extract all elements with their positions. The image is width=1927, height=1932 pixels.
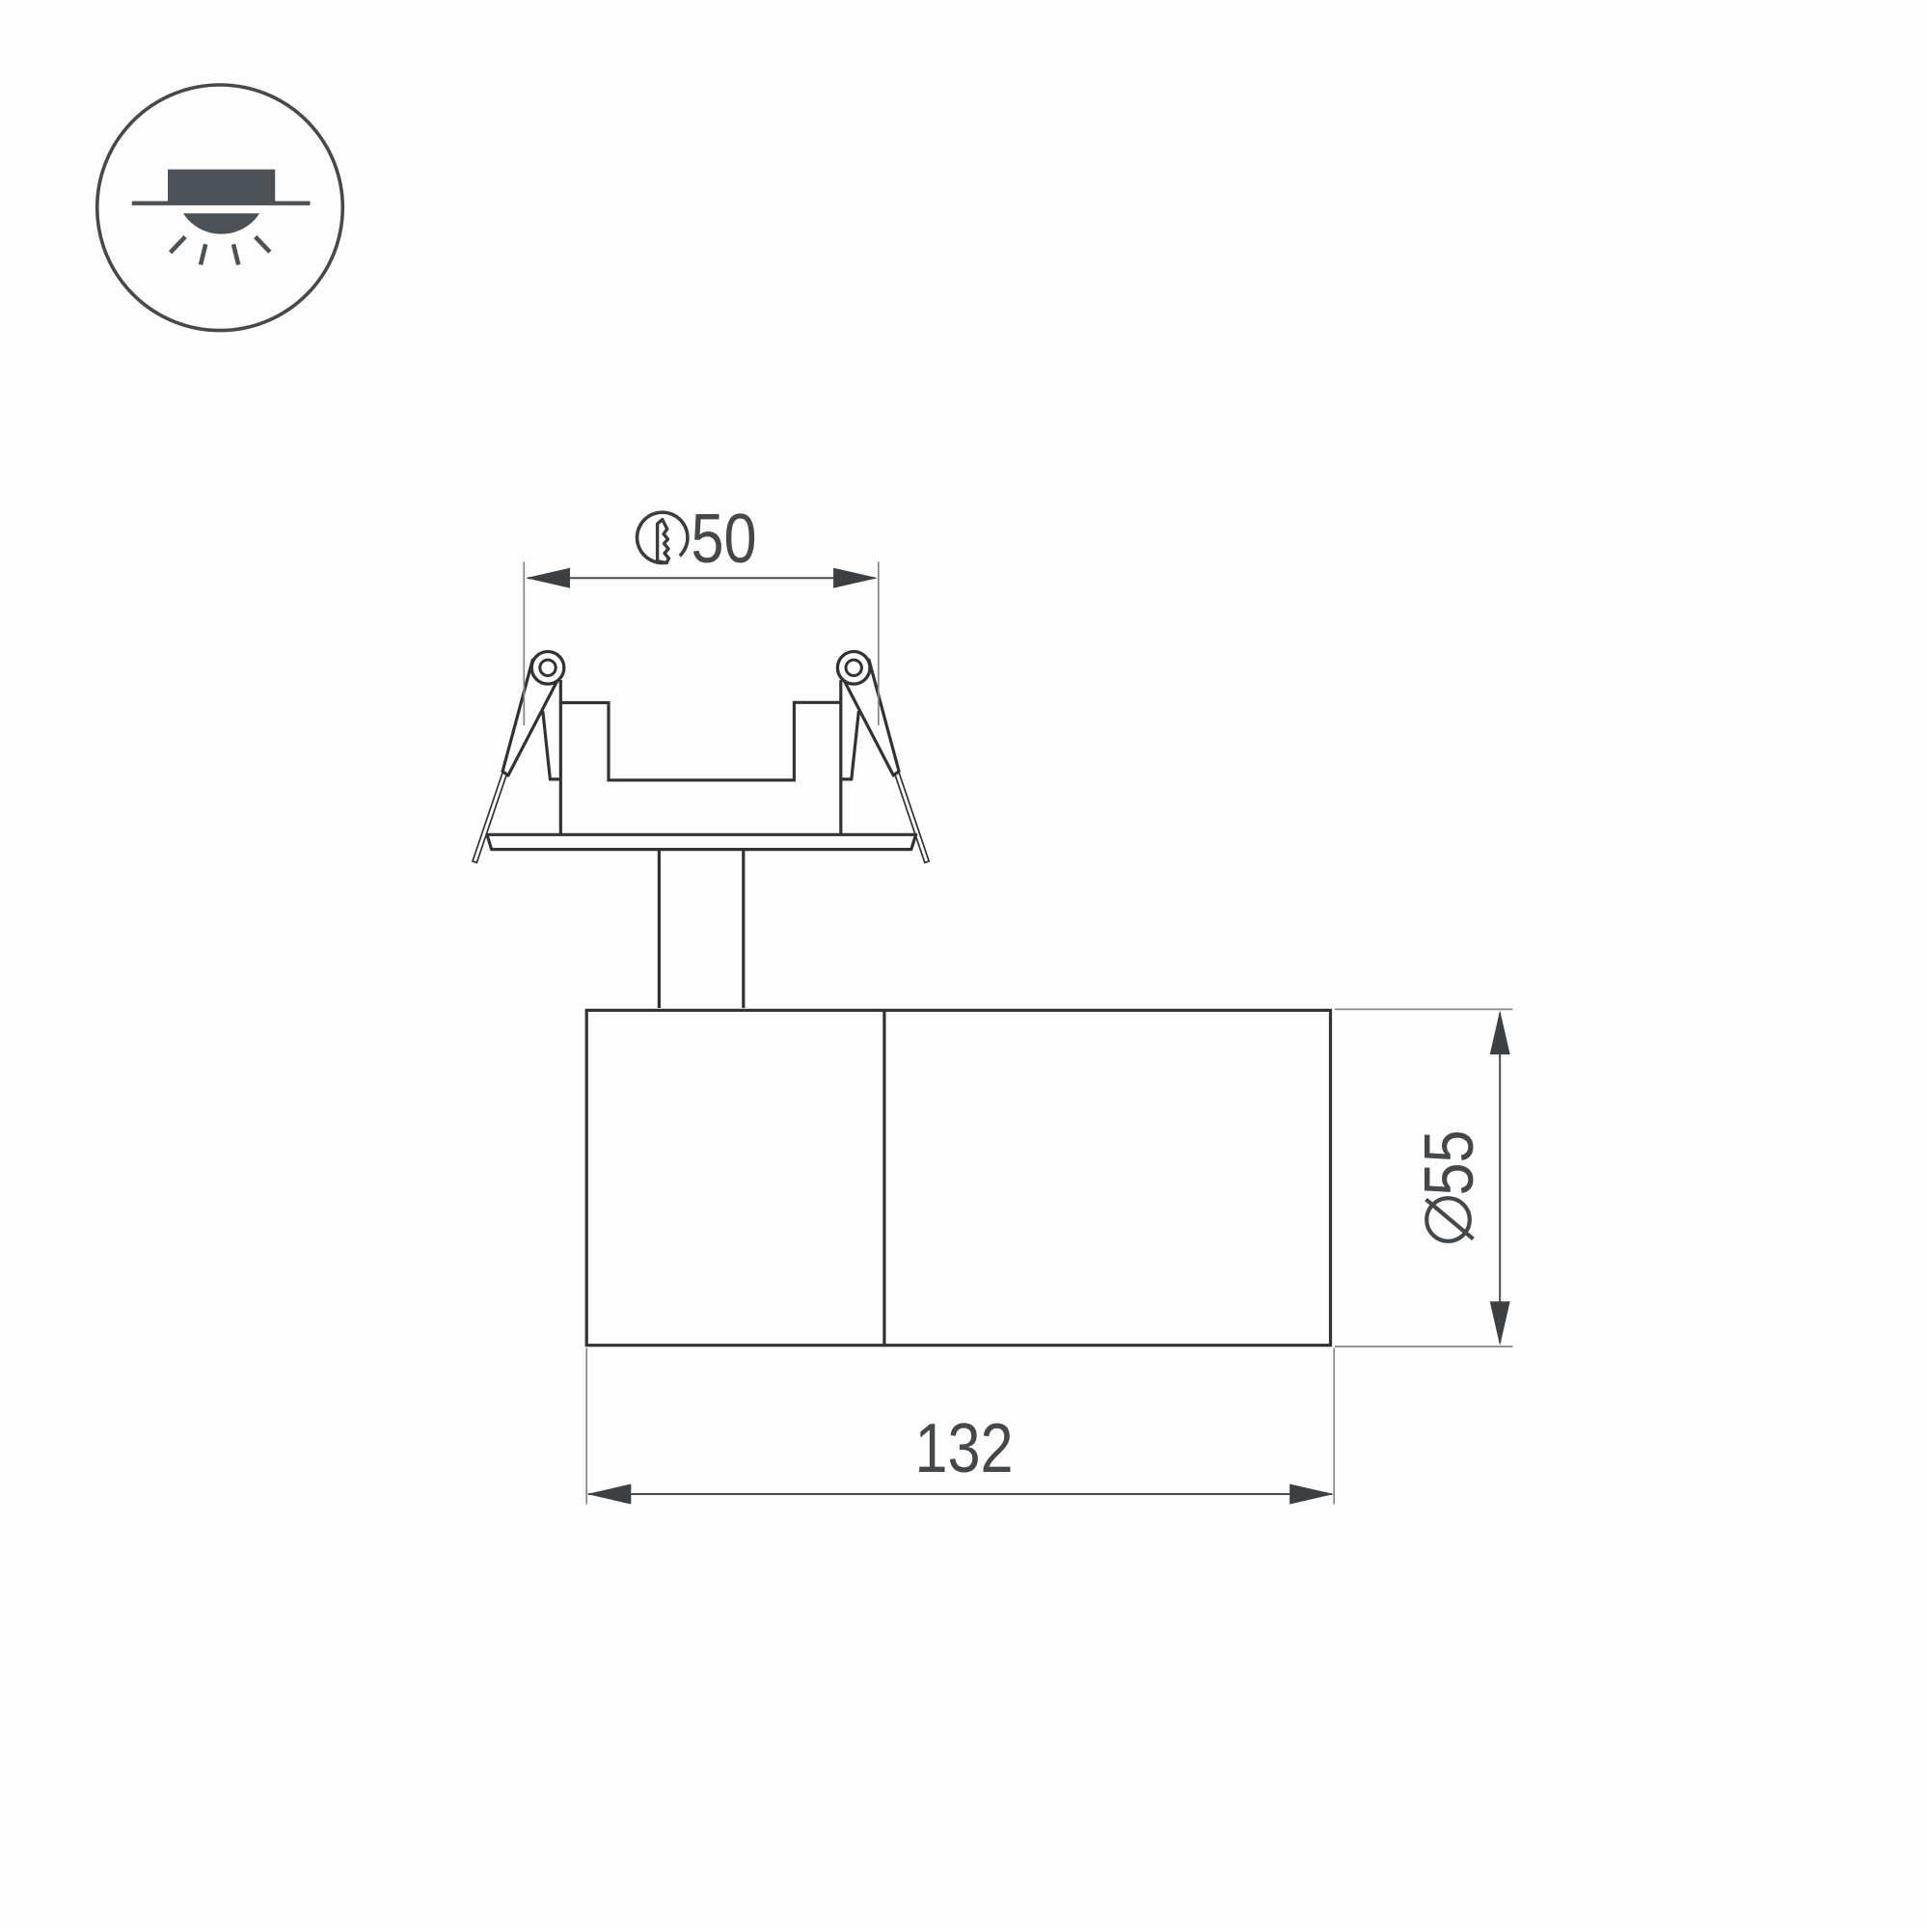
svg-text:50: 50: [691, 501, 756, 578]
svg-text:55: 55: [1411, 1129, 1488, 1195]
svg-text:132: 132: [914, 1410, 1013, 1487]
